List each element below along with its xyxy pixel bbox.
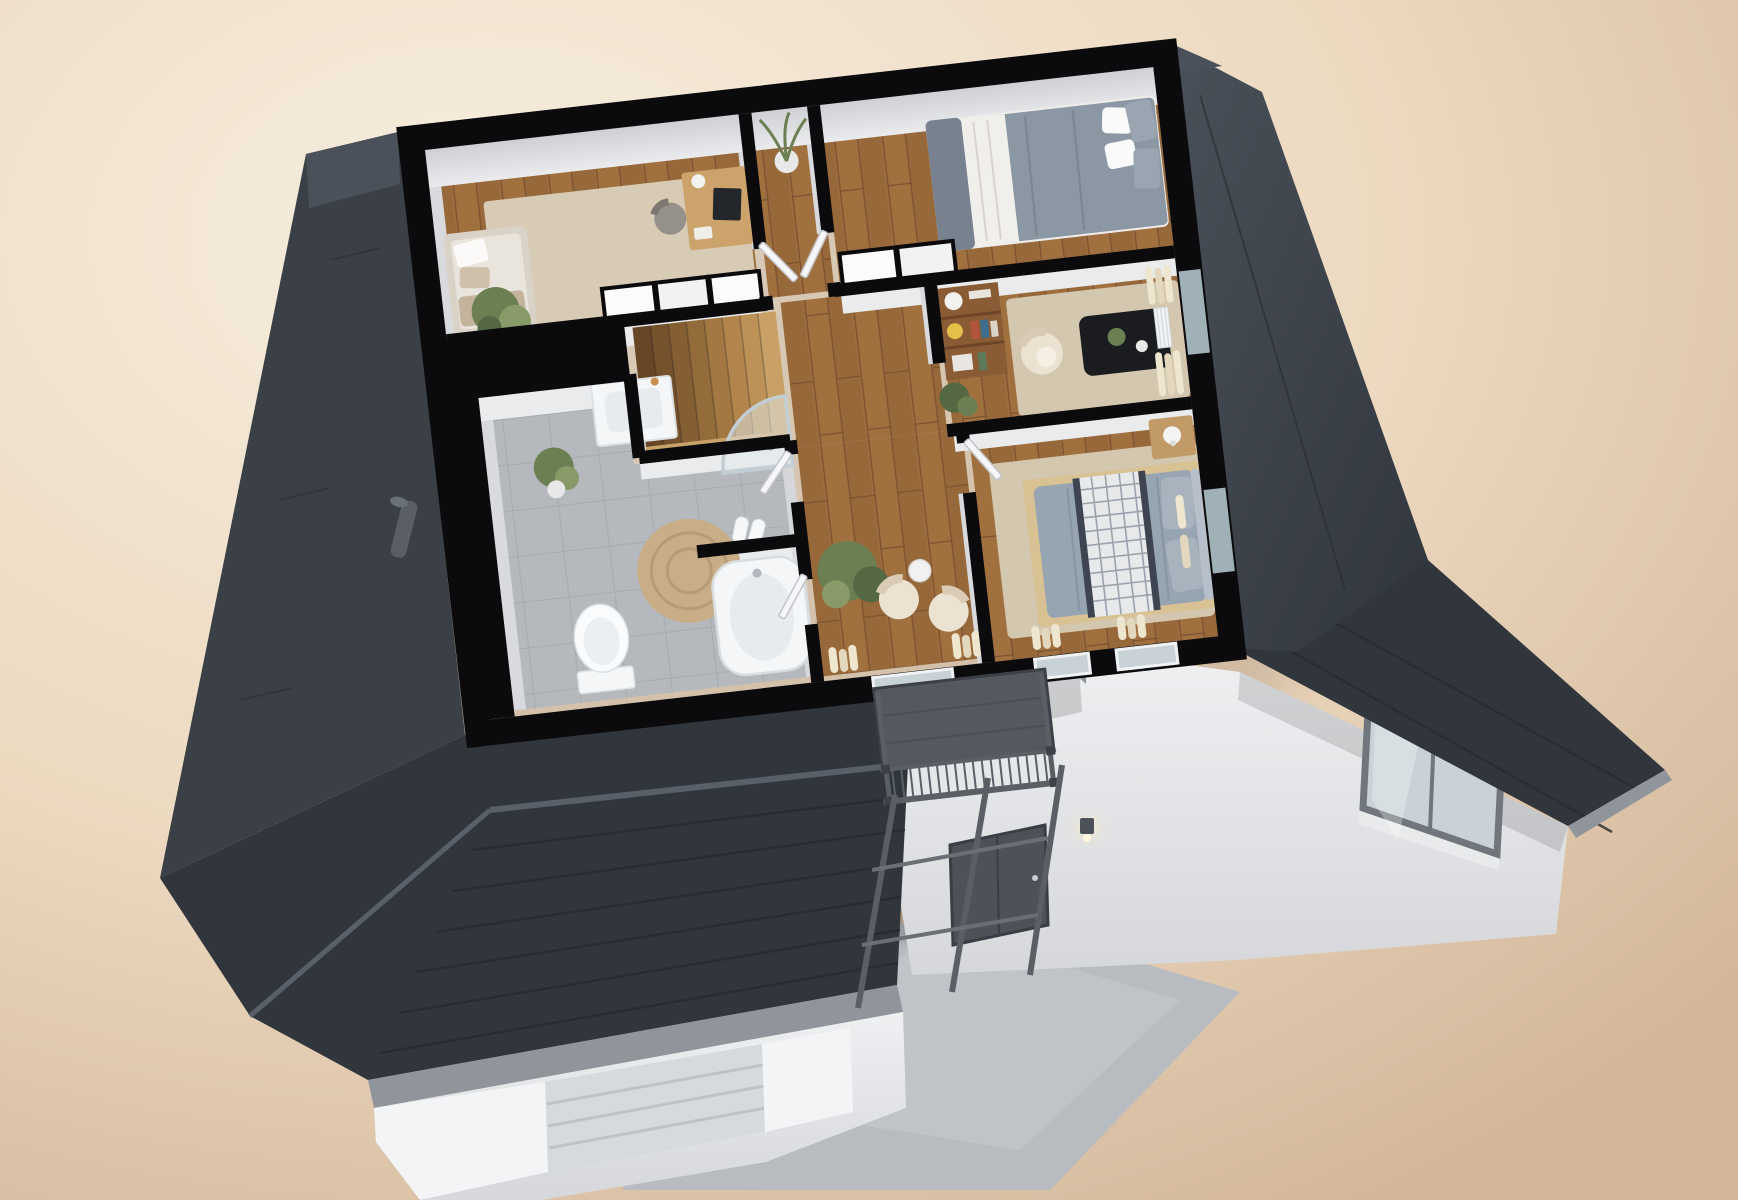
scene-canvas (0, 0, 1738, 1200)
pillow-tan (460, 267, 490, 288)
wall-lamp (1080, 818, 1094, 834)
bookshelf (936, 282, 1008, 380)
corner-post (881, 764, 891, 774)
corner-post (1046, 746, 1056, 756)
bathtub (710, 554, 814, 678)
desk-monitor (713, 188, 742, 221)
door-handle (1032, 875, 1038, 881)
floor-plan-render (0, 0, 1738, 1200)
desk-papers (694, 226, 713, 240)
bed-1 (925, 95, 1169, 252)
office-desk (681, 166, 753, 251)
box (952, 353, 974, 371)
nightstand (1148, 415, 1196, 460)
pillow-gray (1133, 148, 1160, 189)
